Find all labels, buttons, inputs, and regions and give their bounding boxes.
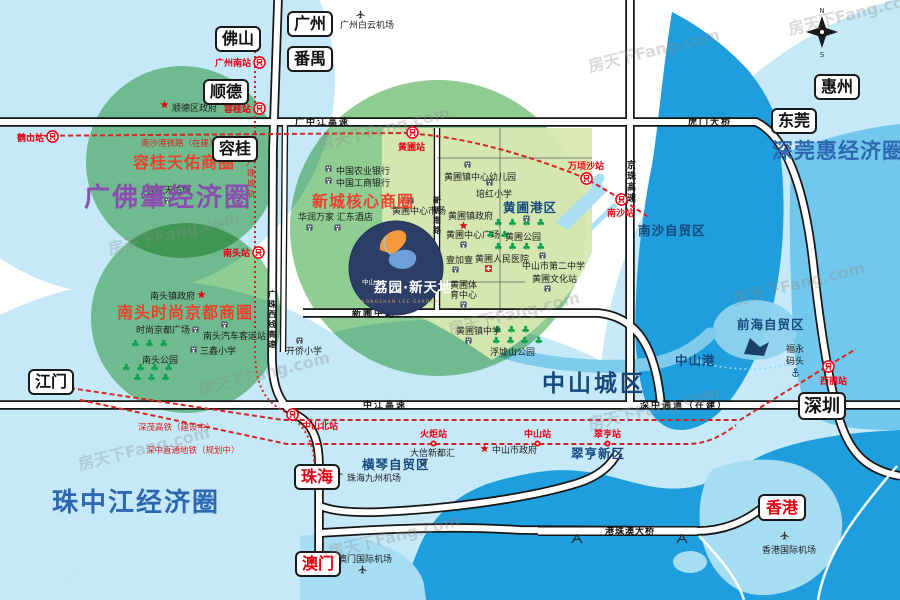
- poi-label: 黄圃人民医院: [475, 253, 529, 265]
- city-hongkong[interactable]: 香港: [759, 495, 805, 520]
- tree-icons: ♣ ♣ ♣: [131, 339, 169, 350]
- station-label: 黄圃站: [398, 141, 425, 153]
- building-icon: [460, 241, 466, 247]
- road-label: 广珠西线高速: [267, 289, 277, 350]
- station-icon[interactable]: [287, 409, 298, 420]
- station-label: 南头站: [223, 247, 250, 259]
- poi-label: 三鑫小学: [200, 345, 236, 357]
- poi-label: 码头: [786, 356, 804, 367]
- city-label: 顺德: [210, 82, 242, 101]
- building-icon: [465, 337, 471, 343]
- poi-label: 广州白云机场: [340, 19, 394, 31]
- building-icon: [523, 215, 529, 221]
- station-label: 万顷沙站: [567, 160, 604, 172]
- poi-label: 育中心: [450, 289, 477, 301]
- city-dongguan[interactable]: 东莞: [772, 109, 816, 133]
- city-shunde[interactable]: 顺德: [204, 80, 248, 104]
- hospital-icon: [485, 265, 492, 272]
- building-icon: [221, 321, 227, 327]
- building-icon: [486, 179, 492, 185]
- station-label: 中山站: [524, 428, 551, 440]
- poi-label: 福永: [786, 343, 804, 355]
- road-label: 港珠澳大桥: [605, 525, 655, 537]
- station-icon[interactable]: [254, 103, 265, 114]
- building-icon: [325, 177, 331, 183]
- district-label: 黄圃港区: [503, 200, 557, 215]
- city-zhuhai[interactable]: 珠海: [295, 465, 339, 489]
- station-label: 中山北站: [302, 420, 338, 432]
- tree-icons: ♣ ♣ ♣: [133, 373, 171, 384]
- business-circle-label: 新城核心商圈: [312, 192, 414, 211]
- building-icon: [460, 301, 466, 307]
- poi-label: 黄圃体: [450, 279, 477, 291]
- building-icon: [296, 337, 302, 343]
- city-label: 珠海: [301, 467, 333, 486]
- road-label: 中江高速: [363, 399, 407, 411]
- tree-icons: ♣ ♣ ♣ ♣: [494, 242, 546, 253]
- building-icon: [334, 224, 340, 230]
- building-icon: [325, 165, 331, 171]
- building-icon: [192, 326, 198, 332]
- poi-label: 黄圃文化站: [532, 273, 577, 285]
- city-label: 香港: [765, 498, 799, 517]
- logo-subtitle: ZHONGSHAN LEE GARDEN: [357, 299, 439, 304]
- poi-label: 中山市政府: [492, 444, 537, 456]
- station-icon[interactable]: [581, 173, 592, 184]
- city-label: 广州: [294, 14, 326, 33]
- district-label: 翠亨新区: [571, 446, 625, 461]
- district-label: 中山港: [675, 353, 716, 368]
- station-label: 火炬站: [420, 428, 447, 440]
- park-label: 黄圃公园: [505, 231, 541, 243]
- road-label: 虎门大桥: [688, 116, 732, 128]
- poi-label: 时尚京都广场: [136, 324, 190, 336]
- district-label: 中山城区: [542, 370, 646, 397]
- road-label: 广中江高速: [295, 116, 350, 128]
- building-icon: [544, 285, 550, 291]
- region-map[interactable]: ♣ ♣ ♣ ♣ ♣ ♣ ♣ ♣ ♣ ♣ 南头公园 ♣ ♣ ♣ ♣ ♣ ♣ ♣ ♣…: [0, 0, 900, 600]
- tree-icons: ♣ ♣ ♣ ♣: [494, 218, 546, 229]
- station-icon[interactable]: [47, 131, 58, 142]
- tree-icons: ♣ ♣ ♣ ♣: [492, 336, 544, 347]
- station-label: 广州南站: [215, 57, 251, 69]
- building-icon: [539, 252, 545, 258]
- station-icon[interactable]: [616, 194, 627, 205]
- city-label: 东莞: [778, 111, 810, 130]
- city-panyu[interactable]: 番禺: [288, 47, 332, 71]
- poi-label: 黄圃中心广场: [446, 229, 500, 241]
- city-jiangmen[interactable]: 江门: [29, 370, 73, 394]
- logo-name: 荔园·新天地: [373, 279, 453, 296]
- city-label: 番禺: [293, 49, 326, 68]
- economic-circle-label: 广佛肇经济圈: [84, 182, 252, 213]
- city-label: 江门: [35, 372, 67, 391]
- poi-label: 中国农业银行: [336, 165, 390, 177]
- poi-label: 华润万家 汇东酒店: [298, 211, 373, 223]
- railway-label: 南沙港铁路（在建）: [141, 138, 218, 149]
- city-guangzhou[interactable]: 广州: [288, 12, 332, 36]
- district-label: 横琴自贸区: [362, 457, 430, 472]
- poi-label: 黄圃镇中心幼儿园: [444, 171, 516, 183]
- station-icon[interactable]: [253, 247, 264, 258]
- station-label: 鹤山站: [17, 132, 44, 144]
- poi-label: 中山市第二中学: [522, 260, 585, 272]
- poi-label: 壹加壹: [446, 254, 473, 266]
- poi-label: 南头镇政府: [150, 290, 195, 302]
- city-label: 惠州: [821, 77, 853, 96]
- poi-label: 香港国际机场: [762, 544, 816, 556]
- building-icon: [306, 224, 312, 230]
- city-label: 佛山: [221, 29, 254, 48]
- city-ronggui[interactable]: 容桂: [213, 137, 257, 161]
- building-icon: [464, 161, 470, 167]
- poi-label: 中国工商银行: [336, 177, 390, 189]
- park-label: 南头公园: [142, 354, 178, 366]
- city-label: 容桂: [218, 139, 251, 158]
- city-foshan[interactable]: 佛山: [216, 27, 260, 51]
- station-icon[interactable]: [823, 361, 834, 372]
- city-label: 深圳: [804, 395, 840, 417]
- station-label: 西丽站: [820, 375, 847, 387]
- city-huizhou[interactable]: 惠州: [815, 75, 859, 99]
- poi-label: 南头汽车客运站: [203, 330, 266, 342]
- city-shenzhen[interactable]: 深圳: [799, 393, 845, 419]
- business-circle-label: 南头时尚京都商圈: [117, 303, 253, 322]
- economic-circle-label: 深莞惠经济圈: [772, 139, 900, 163]
- park-label: 浮墟山公园: [490, 346, 535, 358]
- economic-circle-label: 珠中江经济圈: [52, 487, 220, 518]
- poi-label: 黄圃镇政府: [448, 210, 493, 222]
- poi-label: 珠海九州机场: [347, 472, 401, 484]
- district-label: 南沙自贸区: [638, 223, 706, 238]
- map-canvas: ♣ ♣ ♣ ♣ ♣ ♣ ♣ ♣ ♣ ♣ 南头公园 ♣ ♣ ♣ ♣ ♣ ♣ ♣ ♣…: [0, 0, 900, 600]
- district-label: 前海自贸区: [737, 317, 805, 332]
- station-icon[interactable]: [254, 57, 265, 68]
- metro-stop-icon[interactable]: [431, 441, 437, 447]
- station-label: 南沙站: [607, 207, 634, 219]
- compass-south: S: [820, 51, 825, 59]
- building-icon: [190, 346, 196, 352]
- poi-label: 培红小学: [476, 188, 512, 200]
- building-icon: [452, 266, 458, 272]
